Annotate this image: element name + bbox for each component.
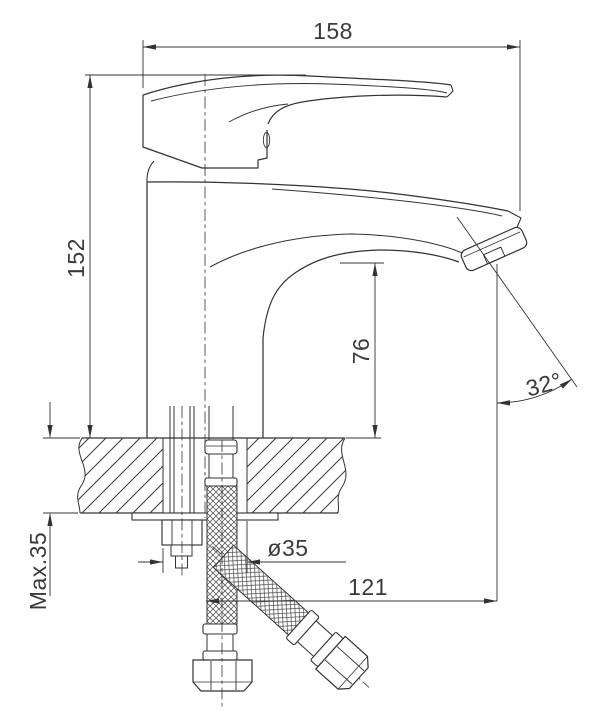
spout-top-edge (147, 182, 508, 211)
label-spout-angle: 32° (523, 367, 565, 402)
washer-plate (132, 513, 278, 520)
label-spout-reach: 121 (348, 574, 388, 600)
supply-hose-straight (193, 406, 252, 691)
label-spout-height: 76 (348, 338, 374, 365)
faucet-technical-drawing: 158 152 76 Max.35 ø35 121 32° (0, 0, 607, 720)
handle-underside (268, 95, 447, 124)
label-hole-diameter: ø35 (267, 535, 308, 561)
technical-drawing-page: 158 152 76 Max.35 ø35 121 32° (0, 0, 607, 720)
aerator (459, 226, 528, 273)
dimension-spout-angle (457, 217, 577, 601)
faucet-handle (143, 75, 453, 168)
dimension-overall-length (143, 40, 520, 211)
dimension-overall-height (85, 75, 306, 438)
dimension-labels: 158 152 76 Max.35 ø35 121 32° (25, 18, 565, 610)
label-deck-thickness: Max.35 (25, 532, 51, 610)
spout-underside-crease (210, 234, 462, 267)
handle-top-edge (143, 75, 451, 95)
label-overall-height: 152 (63, 238, 89, 278)
handle-tip (447, 85, 453, 97)
dimension-lines (43, 40, 577, 604)
faucet-body (147, 161, 529, 438)
hose-hex-nut (193, 660, 252, 691)
label-overall-length: 158 (313, 18, 353, 44)
